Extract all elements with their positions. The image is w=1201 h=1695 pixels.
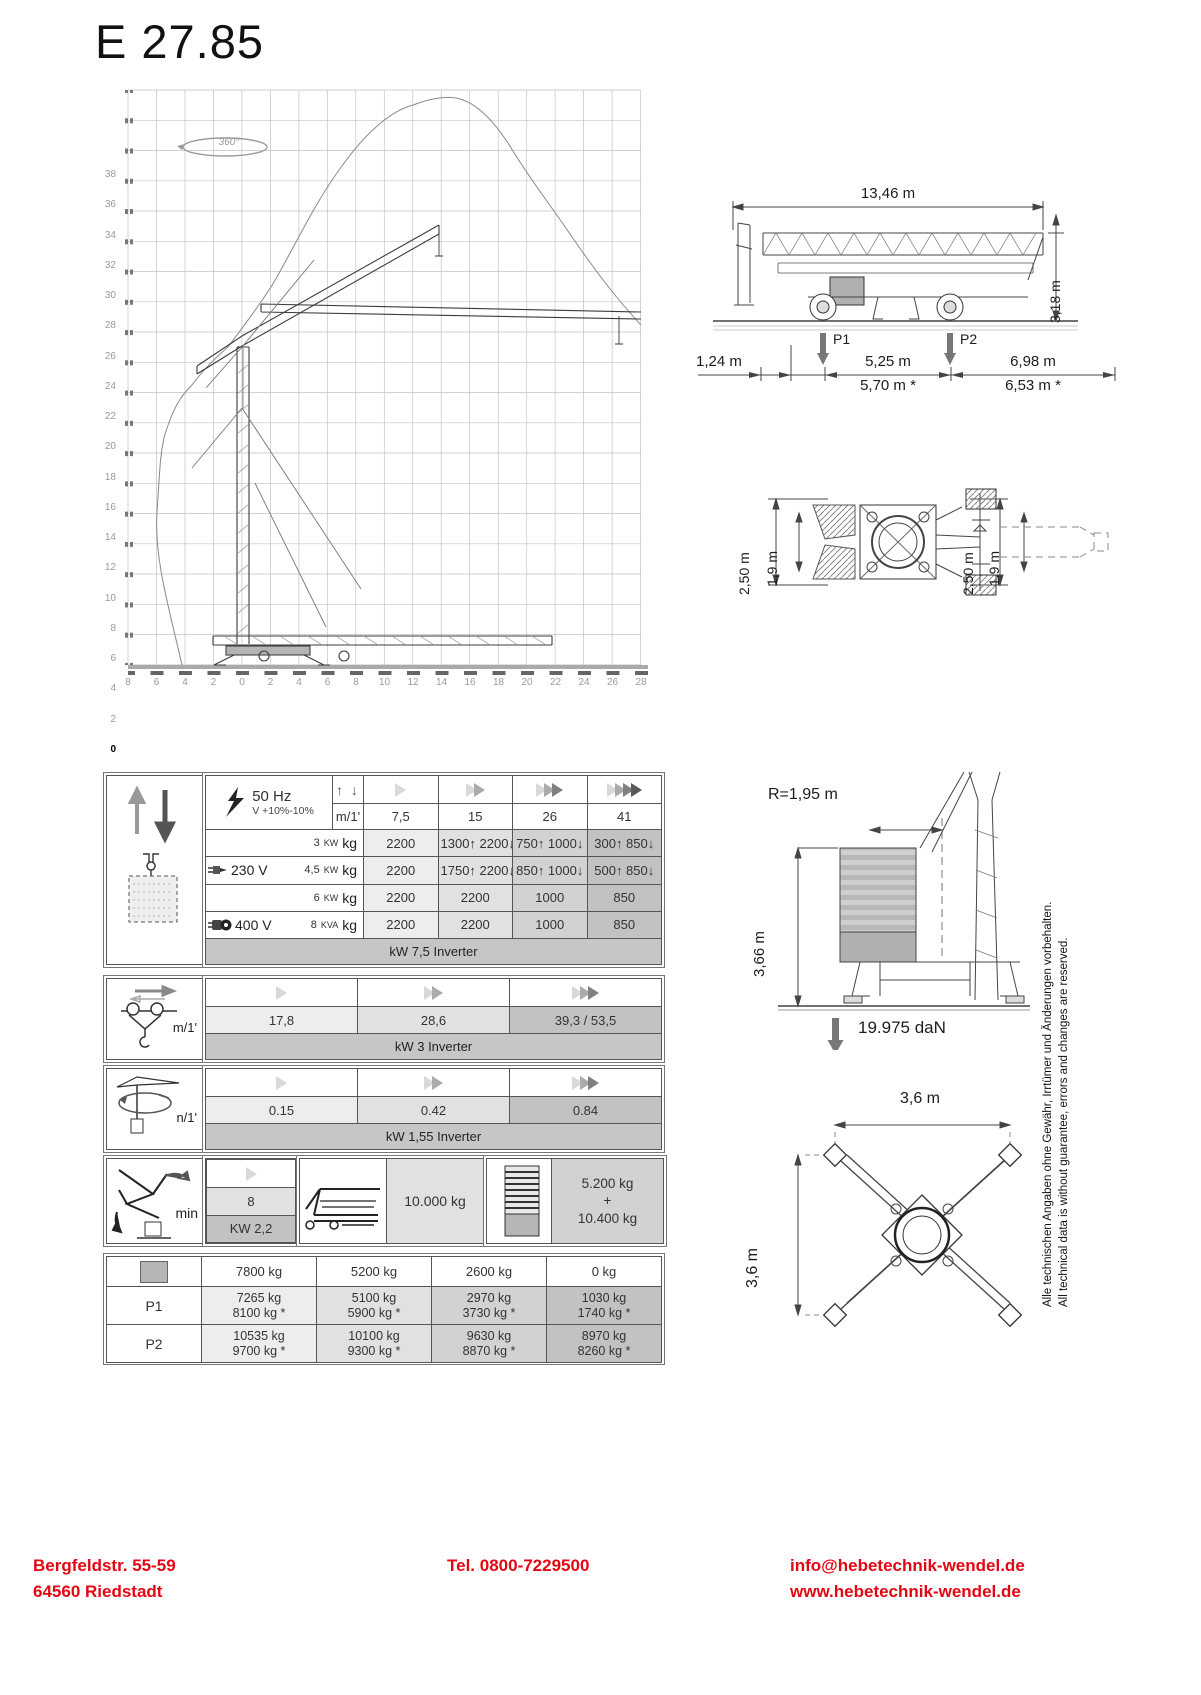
load-normal: 8970 kg <box>549 1329 659 1344</box>
corner-load-value: 19.975 daN <box>858 1018 946 1038</box>
erection-time-box: 8 KW 2,2 <box>205 1158 297 1244</box>
outrigger-base-view: 3,6 m 3,6 m <box>720 1080 1060 1340</box>
load-alt: 3730 kg * <box>434 1306 544 1321</box>
load-cell: 2200 <box>364 884 439 911</box>
hoist-row-6kw: 6 KW kg 2200 2200 1000 850 <box>206 884 662 911</box>
p2-load-cell: 8970 kg 8260 kg * <box>547 1325 662 1363</box>
slewing-speed-2: 0.42 <box>358 1097 510 1124</box>
load-normal: 7265 kg <box>204 1291 314 1306</box>
erection-power: KW 2,2 <box>207 1215 296 1242</box>
power-supply-header: 50 Hz V +10%-10% <box>206 776 333 830</box>
trolley-unit: m/1' <box>173 1020 197 1035</box>
trolley-table: m/1' 17,8 28,6 39,3 / 53,5 kW 3 Inverter <box>106 978 662 1060</box>
p2-row: P2 10535 kg 9700 kg * 10100 kg 9300 kg *… <box>107 1325 662 1363</box>
ballast-plus: + <box>604 1192 612 1210</box>
hoist-speed-1: 7,5 <box>364 804 439 830</box>
power-unit: KVA <box>321 920 338 930</box>
dim-top-inner-left: 1,9 m <box>764 551 780 586</box>
slewing-icon-box: n/1' <box>106 1068 203 1150</box>
y-tick-label: 0 <box>110 743 116 757</box>
footer-email: info@hebetechnik-wendel.de <box>790 1556 1025 1576</box>
y-axis-tickmarks <box>125 90 133 665</box>
load-alt: 5900 kg * <box>319 1306 429 1321</box>
dim-top-outer-left: 2,50 m <box>736 552 752 595</box>
datasheet-page: E 27.85 38363432302826242220181614121086… <box>0 0 1201 1695</box>
working-envelope-curve <box>157 97 641 665</box>
load-alt: 8870 kg * <box>434 1344 544 1359</box>
voltage-tolerance-label: V +10%-10% <box>252 805 314 817</box>
transport-crane-icon <box>300 1171 386 1231</box>
ballast-header: 5200 kg <box>317 1257 432 1287</box>
load-unit: kg <box>342 862 357 878</box>
plug-icon <box>208 864 228 876</box>
slewing-table-main: 0.15 0.42 0.84 kW 1,55 Inverter <box>205 1068 662 1150</box>
trolley-speed-3: 39,3 / 53,5 <box>510 1007 662 1034</box>
ballast-header: 7800 kg <box>202 1257 317 1287</box>
speed-level-3-icon <box>510 979 662 1007</box>
transport-weight-box: 10.000 kg <box>299 1158 484 1244</box>
power-value: 8 <box>311 919 317 931</box>
axle-load-p2-label: P2 <box>960 331 977 347</box>
speed-level-3-icon <box>513 776 588 804</box>
dim-front-overhang: 1,24 m <box>696 353 742 370</box>
erected-view-drawing <box>720 770 1050 1050</box>
load-alt: 8100 kg * <box>204 1306 314 1321</box>
page-title: E 27.85 <box>95 14 264 69</box>
load-normal: 9630 kg <box>434 1329 544 1344</box>
dim-transport-height: 3,18 m <box>1047 280 1063 323</box>
y-tick-label: 4 <box>110 682 116 696</box>
ground-dashes <box>128 671 648 677</box>
load-cell: 2200 <box>364 857 439 884</box>
ballast-icon <box>493 1164 551 1238</box>
disclaimer-english: All technical data is without guarantee,… <box>1058 938 1070 1308</box>
dim-base-depth: 3,6 m <box>744 1248 762 1288</box>
hoist-row-3kw: 3 KW kg 2200 1300↑ 2200↓ 750↑ 1000↓ 300↑… <box>206 830 662 857</box>
y-axis-ticks: 38363432302826242220181614121086420 <box>88 168 116 757</box>
ballast-header-row: 7800 kg 5200 kg 2600 kg 0 kg <box>107 1257 662 1287</box>
transport-side-view: 13,46 m 3,18 m P1 P2 1,24 m 5,25 m 6,98 … <box>678 185 1118 400</box>
p1-row: P1 7265 kg 8100 kg * 5100 kg 5900 kg * 2… <box>107 1287 662 1325</box>
power-value: 6 <box>314 892 320 904</box>
erection-row: min 8 KW 2,2 10.000 kg <box>106 1158 662 1244</box>
dim-p1-p2-alt: 5,70 m * <box>828 377 948 394</box>
load-unit: kg <box>342 917 357 933</box>
range-diagram-plot <box>114 88 654 680</box>
ground-strip <box>128 665 648 669</box>
hoist-icon-box <box>106 775 203 965</box>
slewing-power-note: kW 1,55 Inverter <box>206 1124 662 1150</box>
hoist-table: 50 Hz V +10%-10% ↑ ↓ m/1' 7,5 15 <box>106 775 662 965</box>
load-cell: 1000 <box>513 884 588 911</box>
load-unit: kg <box>342 890 357 906</box>
p2-load-cell: 10100 kg 9300 kg * <box>317 1325 432 1363</box>
load-normal: 5100 kg <box>319 1291 429 1306</box>
footer-phone: Tel. 0800-7229500 <box>447 1556 589 1576</box>
axle-load-table: 7800 kg 5200 kg 2600 kg 0 kg P1 7265 kg … <box>106 1256 662 1362</box>
hoist-speed-3: 26 <box>513 804 588 830</box>
hoist-power-note: kW 7,5 Inverter <box>206 938 662 964</box>
dim-p2-rear-alt: 6,53 m * <box>973 377 1093 394</box>
trolley-icon <box>107 979 200 1057</box>
dim-top-outer-right: 2,50 m <box>960 552 976 595</box>
speed-level-1-icon <box>364 776 439 804</box>
hoist-row-230v: 230 V 4,5 KW kg 2200 1750↑ 2200↓ 850↑ 10… <box>206 857 662 884</box>
speed-level-1-icon <box>207 1160 296 1188</box>
ballast-bottom-value: 10.400 kg <box>578 1210 637 1228</box>
load-alt: 9700 kg * <box>204 1344 314 1359</box>
load-alt: 9300 kg * <box>319 1344 429 1359</box>
load-cell: 750↑ 1000↓ <box>513 830 588 857</box>
p1-label: P1 <box>107 1287 202 1325</box>
power-unit: KW <box>324 838 339 848</box>
transport-weight-value: 10.000 kg <box>386 1159 483 1243</box>
load-alt: 8260 kg * <box>549 1344 659 1359</box>
load-cell: 2200 <box>438 911 513 938</box>
slewing-speed-3: 0.84 <box>510 1097 662 1124</box>
ballast-header: 2600 kg <box>432 1257 547 1287</box>
ballast-header: 0 kg <box>547 1257 662 1287</box>
base-view-drawing <box>720 1080 1060 1340</box>
erection-icon-box: min <box>106 1158 203 1244</box>
slewing-unit: n/1' <box>176 1110 197 1125</box>
load-normal: 1030 kg <box>549 1291 659 1306</box>
ballast-block-icon <box>107 1257 202 1287</box>
voltage-400-label: 400 V <box>208 917 272 933</box>
trolley-speed-2: 28,6 <box>358 1007 510 1034</box>
ballast-weight-value: 5.200 kg + 10.400 kg <box>551 1159 663 1243</box>
p1-load-cell: 2970 kg 3730 kg * <box>432 1287 547 1325</box>
power-unit: KW <box>324 865 339 875</box>
hoist-grid: 50 Hz V +10%-10% ↑ ↓ m/1' 7,5 15 <box>205 775 662 965</box>
trolley-power-note: kW 3 Inverter <box>206 1034 662 1060</box>
frequency-label: 50 Hz <box>252 788 314 805</box>
hoist-speed-4: 41 <box>587 804 662 830</box>
rotation-ellipse <box>177 138 267 156</box>
power-value: 3 <box>314 837 320 849</box>
load-normal: 10100 kg <box>319 1329 429 1344</box>
axle-load-p1-label: P1 <box>833 331 850 347</box>
load-cell: 300↑ 850↓ <box>587 830 662 857</box>
hoist-speed-2: 15 <box>438 804 513 830</box>
ballast-top-value: 5.200 kg <box>582 1175 634 1193</box>
load-unit: kg <box>342 835 357 851</box>
load-alt: 1740 kg * <box>549 1306 659 1321</box>
dim-p2-rear: 6,98 m <box>973 353 1093 370</box>
load-cell: 1750↑ 2200↓ <box>438 857 513 884</box>
load-normal: 2970 kg <box>434 1291 544 1306</box>
load-cell: 2200 <box>364 830 439 857</box>
load-cell: 2200 <box>364 911 439 938</box>
crane-silhouettes <box>192 225 641 665</box>
p2-load-cell: 10535 kg 9700 kg * <box>202 1325 317 1363</box>
slewing-speed-1: 0.15 <box>206 1097 358 1124</box>
ballast-box: 5.200 kg + 10.400 kg <box>486 1158 664 1244</box>
speed-level-2-icon <box>358 979 510 1007</box>
p2-load-cell: 9630 kg 8870 kg * <box>432 1325 547 1363</box>
trolley-speed-1: 17,8 <box>206 1007 358 1034</box>
load-cell: 1300↑ 2200↓ <box>438 830 513 857</box>
footer-address-line1: Bergfeldstr. 55-59 <box>33 1556 176 1576</box>
dim-base-width: 3,6 m <box>850 1090 990 1108</box>
p2-label: P2 <box>107 1325 202 1363</box>
voltage-value: 230 V <box>231 862 268 878</box>
footer-website: www.hebetechnik-wendel.de <box>790 1582 1021 1602</box>
power-value: 4,5 <box>304 864 319 876</box>
trolley-icon-box: m/1' <box>106 978 203 1060</box>
load-cell: 2200 <box>438 884 513 911</box>
dim-erected-height: 3,66 m <box>751 931 768 977</box>
load-cell: 500↑ 850↓ <box>587 857 662 884</box>
hoist-table-main: 50 Hz V +10%-10% ↑ ↓ m/1' 7,5 15 <box>205 775 662 965</box>
erection-time-value: 8 <box>207 1188 296 1215</box>
speed-level-1-icon <box>206 979 358 1007</box>
slewing-table: n/1' 0.15 0.42 0.84 kW 1,55 Inverter <box>106 1068 662 1150</box>
load-cell: 850 <box>587 911 662 938</box>
erection-time-unit: min <box>175 1205 198 1221</box>
p1-load-cell: 5100 kg 5900 kg * <box>317 1287 432 1325</box>
hoist-direction-icon: ↑ ↓ <box>333 776 364 804</box>
generator-plug-icon <box>208 918 232 932</box>
power-unit: KW <box>324 893 339 903</box>
load-cell: 1000 <box>513 911 588 938</box>
y-tick-label: 2 <box>110 713 116 727</box>
load-cell: 850↑ 1000↓ <box>513 857 588 884</box>
speed-level-2-icon <box>438 776 513 804</box>
grid <box>128 90 641 665</box>
speed-level-3-icon <box>510 1069 662 1097</box>
erected-rear-view: R=1,95 m 3,66 m 19.975 daN <box>720 770 1050 1050</box>
disclaimer-german: Alle technischen Angaben ohne Gewähr, Ir… <box>1042 902 1054 1307</box>
dim-ballast-radius: R=1,95 m <box>768 786 838 804</box>
load-cell: 850 <box>587 884 662 911</box>
dim-top-inner-right: 1,9 m <box>986 551 1002 586</box>
dim-p1-p2: 5,25 m <box>828 353 948 370</box>
working-range-diagram: 38363432302826242220181614121086420 8642… <box>88 85 663 690</box>
speed-level-2-icon <box>358 1069 510 1097</box>
voltage-230-label: 230 V <box>208 862 268 878</box>
lightning-icon <box>224 786 246 820</box>
dim-transport-length: 13,46 m <box>738 185 1038 202</box>
erection-icon <box>107 1160 200 1242</box>
transport-top-view: 2,50 m 1,9 m 2,50 m 1,9 m <box>680 475 1120 615</box>
hoist-icon <box>107 776 200 962</box>
speed-unit: m/1' <box>333 804 364 830</box>
slewing-icon <box>107 1069 200 1147</box>
load-normal: 10535 kg <box>204 1329 314 1344</box>
trolley-table-main: 17,8 28,6 39,3 / 53,5 kW 3 Inverter <box>205 978 662 1060</box>
voltage-value: 400 V <box>235 917 272 933</box>
speed-level-4-icon <box>587 776 662 804</box>
footer-address-line2: 64560 Riedstadt <box>33 1582 162 1602</box>
p1-load-cell: 7265 kg 8100 kg * <box>202 1287 317 1325</box>
speed-level-1-icon <box>206 1069 358 1097</box>
p1-load-cell: 1030 kg 1740 kg * <box>547 1287 662 1325</box>
hoist-row-400v: 400 V 8 KVA kg 2200 2200 1000 850 <box>206 911 662 938</box>
